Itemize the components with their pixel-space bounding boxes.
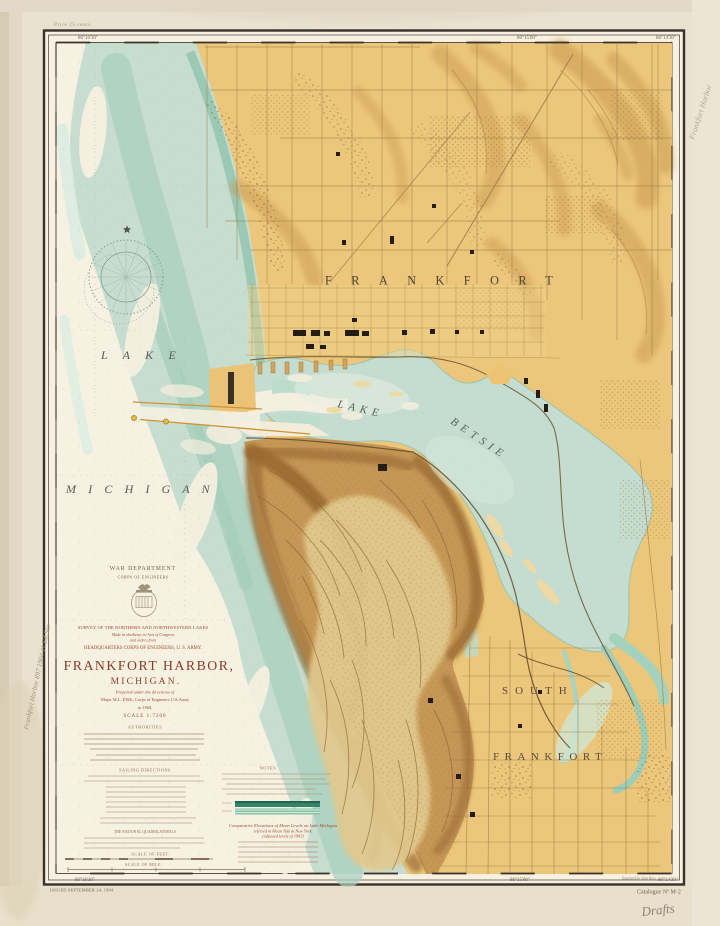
- svg-text:WAR DEPARTMENT: WAR DEPARTMENT: [110, 566, 176, 572]
- svg-text:86°16'30": 86°16'30": [78, 36, 98, 41]
- svg-text:86°15'00": 86°15'00": [517, 36, 537, 41]
- svg-text:Engraved by John Ross: Engraved by John Ross: [622, 877, 656, 881]
- svg-text:Price 25 cents.: Price 25 cents.: [54, 22, 92, 28]
- svg-text:Prepared under the directions: Prepared under the directions of: [115, 690, 175, 695]
- svg-text:SURVEY OF THE NORTHERN AND NOR: SURVEY OF THE NORTHERN AND NORTHWESTERN …: [78, 625, 209, 630]
- svg-text:THE NATIONAL QUADRILATERALS: THE NATIONAL QUADRILATERALS: [114, 830, 176, 834]
- svg-text:FRANKFORT HARBOR,: FRANKFORT HARBOR,: [64, 658, 235, 673]
- svg-text:(adjusted levels of 1903): (adjusted levels of 1903): [262, 834, 304, 839]
- svg-text:SCALE OF MILE: SCALE OF MILE: [125, 862, 161, 867]
- svg-text:86°14'30": 86°14'30": [656, 36, 676, 41]
- svg-text:in 1904.: in 1904.: [138, 705, 153, 710]
- svg-text:Made in obedience to Acts of C: Made in obedience to Acts of Congress: [111, 632, 175, 637]
- svg-text:FRANKFORT: FRANKFORT: [493, 751, 607, 763]
- svg-text:SOUTH: SOUTH: [502, 685, 574, 697]
- svg-text:NOTES: NOTES: [260, 766, 277, 771]
- svg-text:86°15'00": 86°15'00": [510, 878, 530, 883]
- svg-text:MICHIGAN.: MICHIGAN.: [111, 677, 182, 687]
- svg-text:SAILING DIRECTIONS: SAILING DIRECTIONS: [119, 768, 171, 773]
- svg-text:FRANKFORT: FRANKFORT: [325, 274, 572, 288]
- svg-text:AUTHORITIES: AUTHORITIES: [128, 725, 162, 730]
- svg-text:86°14'30": 86°14'30": [658, 878, 678, 883]
- svg-text:CORPS OF ENGINEERS: CORPS OF ENGINEERS: [117, 575, 168, 580]
- svg-text:L A K E: L A K E: [100, 348, 182, 362]
- svg-text:and orders from: and orders from: [130, 638, 156, 643]
- svg-text:Catalogue Nº M·2: Catalogue Nº M·2: [637, 890, 681, 896]
- svg-text:M I C H I G A N: M I C H I G A N: [65, 482, 214, 496]
- svg-text:Comparative Elevations of Mean: Comparative Elevations of Mean Levels on…: [229, 823, 338, 828]
- svg-text:SCALE OF FEET: SCALE OF FEET: [131, 852, 168, 857]
- svg-text:SCALE 1:7200: SCALE 1:7200: [124, 714, 167, 719]
- svg-text:86°16'30": 86°16'30": [75, 878, 95, 883]
- svg-text:HEADQUARTERS CORPS OF ENGINEER: HEADQUARTERS CORPS OF ENGINEERS, U. S. A…: [84, 646, 202, 651]
